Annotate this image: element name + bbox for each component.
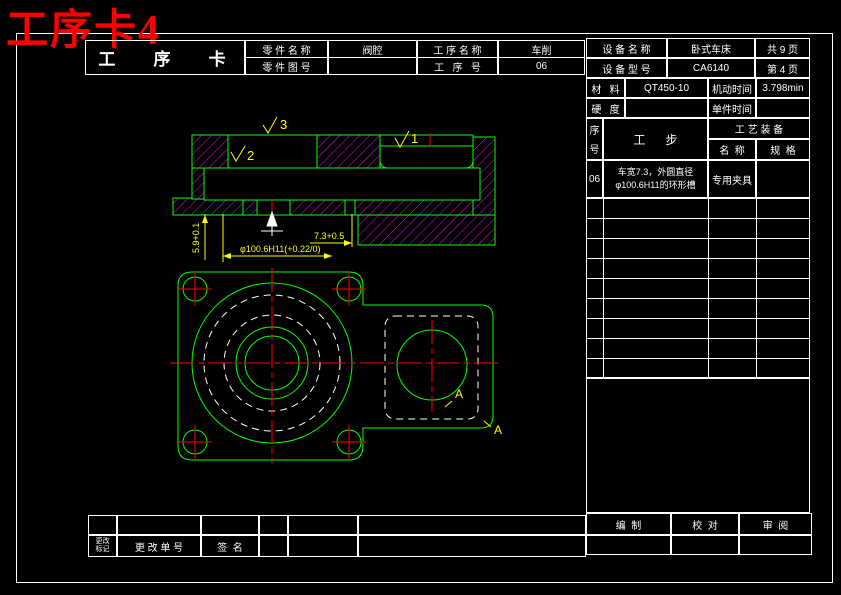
finish-symbol-3 xyxy=(263,117,277,133)
dim-groove-width: 7.3+0.5 xyxy=(314,231,344,241)
plan-view xyxy=(170,268,502,464)
part-drawing: 3 2 1 5.9+0.1 φ100.6H11(+0.22/0) 7.3+0.5 xyxy=(0,0,841,595)
cad-process-card-sheet: 工序卡4 工 序 卡 零 件 名 称 阀腔 工 序 名 称 车削 零 件 图 号… xyxy=(0,0,841,595)
section-label-a2: A xyxy=(494,423,502,437)
dim-diameter: φ100.6H11(+0.22/0) xyxy=(240,244,320,254)
dim-groove-depth: 5.9+0.1 xyxy=(191,223,201,253)
housing-outline xyxy=(178,272,493,460)
finish-mark-1: 1 xyxy=(411,131,418,146)
finish-mark-3: 3 xyxy=(280,117,287,132)
datum-arrow xyxy=(261,212,283,236)
finish-mark-2: 2 xyxy=(247,148,254,163)
section-label-a1: A xyxy=(455,387,463,401)
centerlines xyxy=(170,268,502,464)
section-view xyxy=(173,133,495,245)
